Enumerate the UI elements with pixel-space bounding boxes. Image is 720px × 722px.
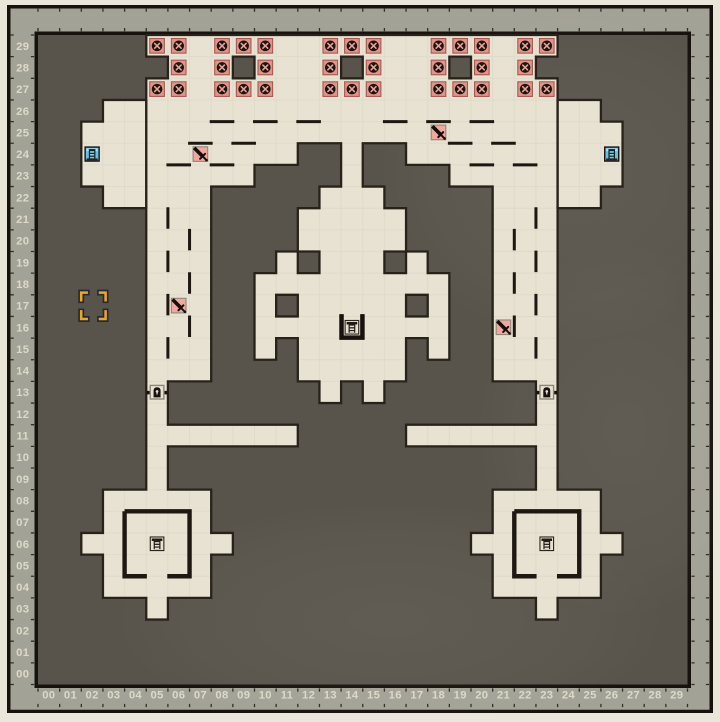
- svg-text:04: 04: [16, 582, 30, 594]
- svg-text:02: 02: [16, 625, 29, 637]
- svg-text:22: 22: [16, 192, 29, 204]
- svg-text:01: 01: [16, 647, 29, 659]
- svg-text:10: 10: [16, 452, 29, 464]
- svg-text:26: 26: [16, 106, 29, 118]
- svg-text:28: 28: [16, 63, 29, 75]
- svg-text:14: 14: [16, 366, 30, 378]
- svg-text:16: 16: [389, 689, 402, 701]
- svg-text:21: 21: [497, 689, 510, 701]
- svg-text:13: 13: [324, 689, 337, 701]
- svg-text:25: 25: [584, 689, 597, 701]
- svg-text:18: 18: [432, 689, 445, 701]
- svg-text:09: 09: [16, 474, 29, 486]
- svg-text:22: 22: [519, 689, 532, 701]
- svg-text:16: 16: [16, 322, 29, 334]
- svg-text:03: 03: [16, 604, 29, 616]
- svg-text:01: 01: [64, 689, 77, 701]
- svg-text:11: 11: [16, 431, 29, 443]
- svg-text:00: 00: [16, 669, 29, 681]
- svg-text:05: 05: [16, 560, 29, 572]
- svg-text:04: 04: [129, 689, 143, 701]
- svg-text:29: 29: [670, 689, 683, 701]
- svg-text:20: 20: [16, 236, 29, 248]
- svg-text:15: 15: [16, 344, 29, 356]
- svg-text:24: 24: [16, 149, 30, 161]
- svg-text:21: 21: [16, 214, 29, 226]
- svg-text:23: 23: [540, 689, 553, 701]
- svg-text:14: 14: [345, 689, 359, 701]
- svg-text:19: 19: [454, 689, 467, 701]
- svg-text:09: 09: [237, 689, 250, 701]
- svg-text:25: 25: [16, 127, 29, 139]
- svg-text:27: 27: [627, 689, 640, 701]
- svg-text:23: 23: [16, 171, 29, 183]
- svg-text:07: 07: [194, 689, 207, 701]
- svg-text:06: 06: [16, 539, 29, 551]
- svg-text:03: 03: [107, 689, 120, 701]
- svg-text:12: 12: [302, 689, 315, 701]
- svg-text:02: 02: [86, 689, 99, 701]
- svg-text:08: 08: [215, 689, 228, 701]
- svg-text:00: 00: [42, 689, 55, 701]
- svg-text:10: 10: [259, 689, 272, 701]
- svg-text:05: 05: [151, 689, 164, 701]
- svg-text:17: 17: [410, 689, 423, 701]
- svg-text:28: 28: [648, 689, 661, 701]
- svg-text:08: 08: [16, 496, 29, 508]
- svg-text:15: 15: [367, 689, 380, 701]
- svg-text:07: 07: [16, 517, 29, 529]
- svg-text:27: 27: [16, 84, 29, 96]
- svg-text:17: 17: [16, 301, 29, 313]
- svg-text:12: 12: [16, 409, 29, 421]
- svg-text:13: 13: [16, 387, 29, 399]
- svg-text:26: 26: [605, 689, 618, 701]
- svg-text:24: 24: [562, 689, 576, 701]
- svg-text:18: 18: [16, 279, 29, 291]
- svg-text:29: 29: [16, 41, 29, 53]
- svg-text:11: 11: [281, 689, 294, 701]
- svg-text:06: 06: [172, 689, 185, 701]
- svg-text:19: 19: [16, 257, 29, 269]
- svg-text:20: 20: [475, 689, 488, 701]
